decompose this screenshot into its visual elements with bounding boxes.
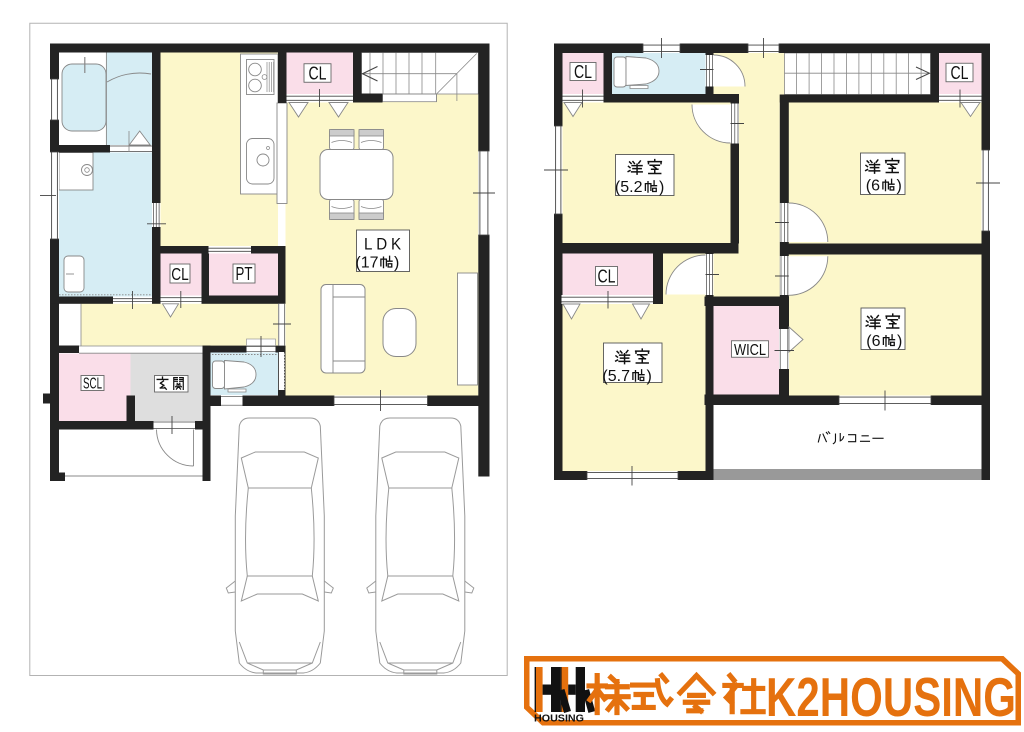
svg-text:): ) [897, 333, 902, 350]
svg-text:PT: PT [236, 264, 253, 284]
svg-text:): ) [897, 177, 902, 194]
svg-text:(17: (17 [355, 255, 378, 272]
svg-text:(6: (6 [866, 333, 880, 350]
svg-text:CL: CL [309, 64, 327, 84]
svg-text:): ) [394, 255, 399, 272]
svg-text:LDK: LDK [364, 236, 405, 254]
svg-text:CL: CL [598, 267, 616, 287]
svg-text:(6: (6 [866, 177, 880, 194]
svg-text:SCL: SCL [83, 376, 102, 393]
svg-text:(5.2: (5.2 [615, 179, 643, 196]
svg-text:): ) [647, 368, 652, 385]
svg-text:(5.7: (5.7 [602, 368, 630, 385]
svg-text:CL: CL [171, 264, 189, 284]
svg-text:K2HOUSING: K2HOUSING [766, 666, 1016, 728]
svg-text:CL: CL [574, 62, 592, 82]
svg-text:WICL: WICL [734, 342, 766, 359]
svg-text:CL: CL [951, 63, 969, 83]
svg-text:HOUSING: HOUSING [534, 714, 584, 725]
svg-text:): ) [659, 179, 664, 196]
